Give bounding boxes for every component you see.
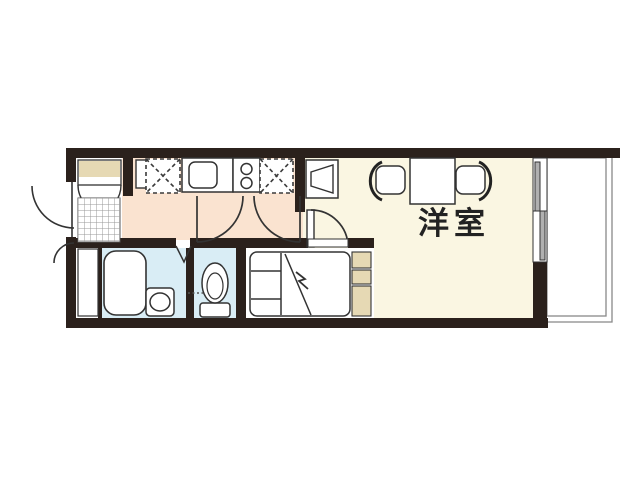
alcove-opening: [308, 239, 348, 247]
shelf-unit: [352, 252, 371, 316]
bathtub: [104, 251, 146, 315]
floorplan-image: 洋室: [0, 0, 640, 480]
chair-right: [456, 166, 485, 194]
shelf-cell-3: [352, 286, 371, 316]
shelf-cell-1: [352, 252, 371, 268]
wall-toilet-bed: [236, 248, 246, 318]
wall-bath-toilet: [186, 248, 194, 318]
bed: [250, 252, 350, 316]
wall-top: [66, 148, 620, 158]
wall-below-window: [533, 262, 547, 318]
table: [410, 158, 455, 204]
washing-machine-space: [306, 160, 338, 198]
wall-left-lower: [66, 237, 76, 328]
window-pane-2: [540, 211, 545, 260]
shoe-cabinet-top: [79, 161, 120, 177]
floorplan-drawing: [0, 0, 640, 480]
genkan-tile-grid: [78, 198, 120, 242]
wall-bottom: [66, 318, 548, 328]
chair-left: [376, 166, 405, 194]
pipe-space: [78, 249, 98, 316]
kitchen-sink: [189, 162, 217, 188]
balcony: [547, 158, 612, 322]
sliding-window: [533, 158, 547, 262]
balcony-area: [547, 158, 606, 316]
kitchen: [146, 158, 293, 193]
wall-mid-2: [190, 238, 308, 248]
wall-left-upper: [66, 148, 76, 182]
toilet-tank: [200, 303, 230, 317]
western-room-floor-lower: [372, 240, 535, 320]
bed-area: [250, 252, 350, 316]
wall-mid-3: [348, 238, 374, 248]
refrigerator-space: [146, 159, 180, 193]
window-pane-1: [535, 162, 540, 211]
entrance-door-arc: [32, 186, 74, 228]
toilet-bowl: [202, 263, 228, 303]
shelf-cell-2: [352, 270, 371, 284]
refrigerator-space-2: [260, 159, 293, 193]
room-label-western: 洋室: [418, 209, 498, 240]
wall-genkan-kitchen: [123, 158, 133, 196]
